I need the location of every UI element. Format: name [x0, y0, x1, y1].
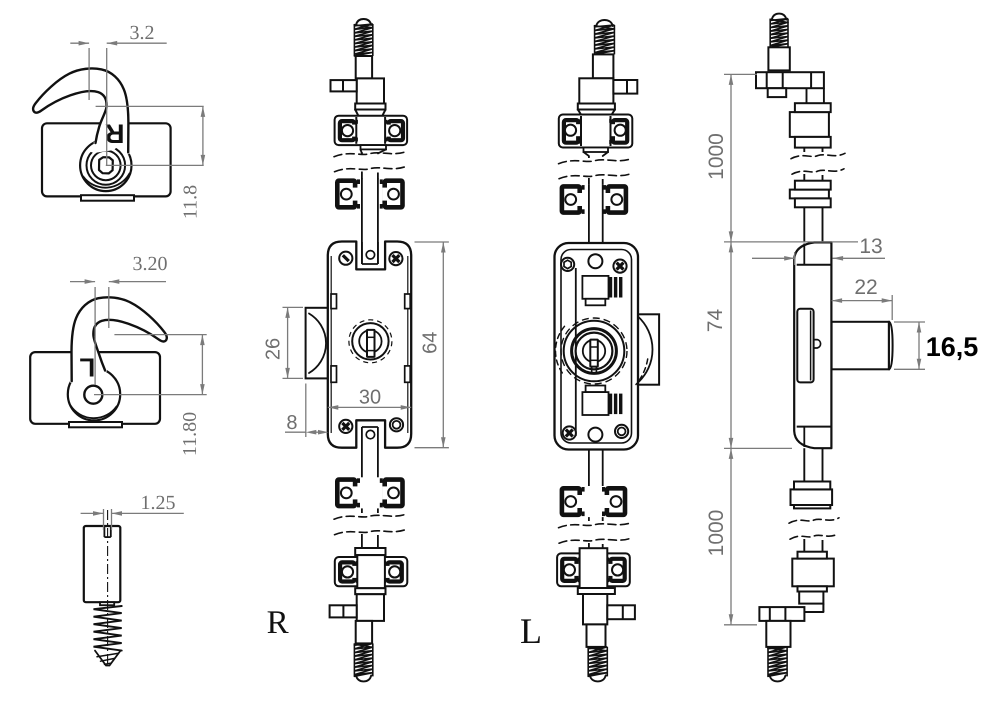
svg-text:30: 30: [359, 386, 381, 408]
svg-text:3.2: 3.2: [129, 22, 154, 44]
svg-text:L: L: [520, 611, 542, 651]
svg-text:22: 22: [854, 276, 877, 299]
svg-text:64: 64: [420, 332, 442, 354]
svg-text:74: 74: [704, 309, 727, 333]
svg-text:R: R: [267, 605, 289, 641]
svg-text:3.20: 3.20: [132, 253, 167, 275]
svg-text:26: 26: [263, 338, 285, 360]
svg-text:8: 8: [286, 412, 297, 434]
svg-text:1000: 1000: [705, 510, 728, 557]
svg-text:R: R: [105, 119, 125, 149]
svg-text:L: L: [79, 353, 95, 383]
svg-text:11.80: 11.80: [179, 412, 201, 456]
svg-text:16,5: 16,5: [926, 332, 979, 362]
svg-text:1.25: 1.25: [140, 492, 175, 514]
svg-text:1000: 1000: [705, 133, 728, 180]
svg-text:13: 13: [859, 235, 882, 258]
svg-text:11.8: 11.8: [180, 185, 202, 219]
